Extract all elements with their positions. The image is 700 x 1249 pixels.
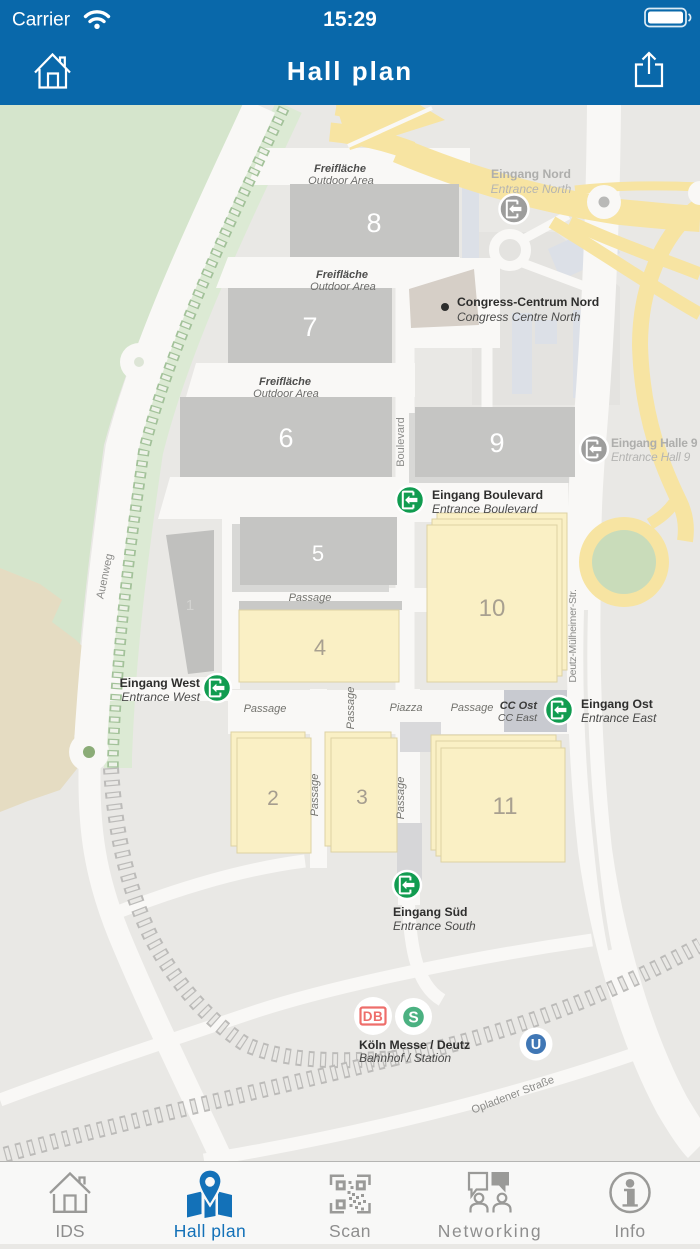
svg-text:6: 6	[278, 423, 293, 453]
svg-text:Outdoor Area: Outdoor Area	[253, 388, 319, 400]
svg-text:4: 4	[314, 635, 326, 660]
svg-text:Freifläche: Freifläche	[259, 376, 311, 388]
svg-text:Entrance West: Entrance West	[122, 690, 201, 704]
svg-text:CC East: CC East	[498, 712, 538, 724]
svg-text:Passage: Passage	[289, 592, 332, 604]
svg-text:Passage: Passage	[345, 687, 357, 730]
svg-text:Networking: Networking	[438, 1221, 543, 1241]
svg-text:Hall plan: Hall plan	[174, 1221, 247, 1241]
svg-text:Congress Centre North: Congress Centre North	[457, 310, 581, 324]
svg-text:5: 5	[312, 541, 324, 566]
svg-text:Info: Info	[614, 1221, 645, 1241]
svg-text:Scan: Scan	[329, 1221, 371, 1241]
svg-text:9: 9	[489, 428, 504, 458]
svg-text:Entrance East: Entrance East	[581, 711, 657, 725]
svg-text:Eingang Ost: Eingang Ost	[581, 697, 653, 711]
svg-text:Entrance Hall 9: Entrance Hall 9	[611, 450, 691, 464]
svg-text:CC Ost: CC Ost	[500, 700, 539, 712]
svg-text:Freifläche: Freifläche	[316, 269, 368, 281]
svg-text:11: 11	[493, 793, 518, 820]
svg-text:Hall plan: Hall plan	[287, 56, 413, 86]
svg-text:Deutz-Mülheimer-Str.: Deutz-Mülheimer-Str.	[567, 589, 579, 682]
svg-text:Eingang West: Eingang West	[120, 676, 200, 690]
svg-text:Eingang Süd: Eingang Süd	[393, 905, 467, 919]
svg-text:Boulevard: Boulevard	[395, 417, 407, 467]
svg-text:Passage: Passage	[395, 777, 407, 820]
svg-text:Outdoor Area: Outdoor Area	[310, 281, 376, 293]
svg-text:1: 1	[186, 597, 194, 614]
svg-text:8: 8	[366, 208, 381, 238]
svg-text:Passage: Passage	[309, 774, 321, 817]
svg-text:Entrance North: Entrance North	[491, 182, 572, 196]
svg-text:Entrance South: Entrance South	[393, 919, 476, 933]
svg-text:U: U	[531, 1037, 541, 1053]
svg-text:IDS: IDS	[55, 1221, 84, 1241]
svg-text:Piazza: Piazza	[389, 702, 422, 714]
svg-text:Passage: Passage	[244, 703, 287, 715]
svg-text:Bahnhof / Station: Bahnhof / Station	[359, 1051, 451, 1065]
svg-text:Eingang Boulevard: Eingang Boulevard	[432, 488, 543, 502]
svg-text:10: 10	[479, 595, 506, 622]
svg-text:Outdoor Area: Outdoor Area	[308, 175, 374, 187]
svg-text:Congress-Centrum Nord: Congress-Centrum Nord	[457, 295, 599, 309]
svg-text:Eingang Nord: Eingang Nord	[491, 167, 571, 181]
svg-text:Passage: Passage	[451, 702, 494, 714]
svg-text:Freifläche: Freifläche	[314, 163, 366, 175]
svg-text:DB: DB	[363, 1009, 384, 1024]
svg-text:Carrier: Carrier	[12, 10, 71, 31]
svg-text:15:29: 15:29	[323, 8, 377, 31]
svg-text:S: S	[408, 1009, 418, 1026]
svg-text:3: 3	[356, 786, 368, 809]
svg-text:Köln Messe / Deutz: Köln Messe / Deutz	[359, 1038, 470, 1052]
svg-text:Entrance Boulevard: Entrance Boulevard	[432, 502, 538, 516]
svg-text:2: 2	[267, 787, 279, 810]
svg-text:7: 7	[302, 312, 317, 342]
svg-text:Eingang Halle 9: Eingang Halle 9	[611, 436, 698, 450]
